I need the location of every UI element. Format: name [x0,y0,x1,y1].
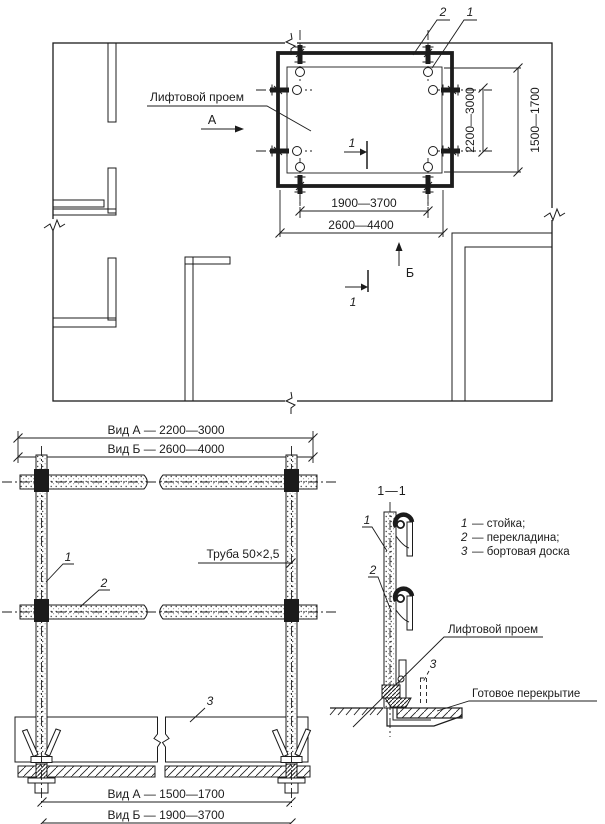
rail-hook-upper [395,515,412,556]
elev-callout-2: 2 [100,576,108,590]
opening-label-leader [147,106,311,131]
section-mark-label: 1 [349,136,356,150]
plan-dimensions: 1900—3700 2600—4400 2200—3000 1500—1700 [276,64,543,238]
drawing-sheet: 1900—3700 2600—4400 2200—3000 1500—1700 … [0,0,605,824]
section-board-hidden [420,678,427,706]
technical-drawing: 1900—3700 2600—4400 2200—3000 1500—1700 … [0,0,605,824]
plan-view: 1900—3700 2600—4400 2200—3000 1500—1700 … [44,5,565,414]
section-title: 1—1 [377,484,406,498]
sect-callout-1-leader [362,527,387,551]
plan-clamp-centerlines [256,30,492,218]
sect-callout-2: 2 [369,563,377,577]
legend-3-text: — бортовая доска [472,546,570,558]
elev-dim-bottom-a: Вид А — 1500—1700 [107,787,224,801]
slab-label: Готовое перекрытие [472,688,580,700]
plan-dim-height-inner: 2200—3000 [463,87,477,153]
legend-2-text: — перекладина; [472,532,559,544]
elev-dim-bottom-b: Вид Б — 1900—3700 [108,808,225,822]
view-b-label: Б [406,266,414,280]
elev-callout-3: 3 [207,694,214,708]
section-floor-left [330,708,383,715]
elev-dim-top-a: Вид А — 2200—3000 [107,423,224,437]
elevation-labels: 1 2 Труба 50×2,5 3 [46,547,296,722]
section-view: 1—1 1 2 3 Лифтовой проем Готовое перекры… [330,484,597,737]
legend-1-num: 1 [461,518,467,530]
sect-opening-label: Лифтовой проем [448,624,538,636]
elev-dim-top-b: Вид Б — 2600—4000 [108,442,225,456]
elevation-slab [18,766,310,777]
plan-callout-1: 1 [467,5,474,19]
section-mark-label: 1 [350,295,357,309]
elev-callout-1: 1 [65,550,72,564]
elevation-dimensions-bottom: Вид А — 1500—1700 Вид Б — 1900—3700 [38,787,296,824]
sect-callout-3-leader [423,671,429,682]
pipe-label: Труба 50×2,5 [207,547,280,561]
legend-1-text: — стойка; [472,518,525,530]
plan-walls [53,43,552,401]
elevation-view: Вид А — 2200—3000 Вид Б — 2600—4000 1 2 … [2,423,337,824]
section-legend: 1 — стойка; 2 — перекладина; 3 — бортова… [460,518,570,558]
legend-2-num: 2 [460,532,468,544]
elev-callout-2-leader [80,590,110,607]
sect-callout-1: 1 [364,513,371,527]
elev-callout-1-leader [46,564,74,582]
view-a-label: А [208,113,217,127]
plan-dim-width-inner: 1900—3700 [331,196,397,210]
elevation-dimensions-top: Вид А — 2200—3000 Вид Б — 2600—4000 [14,423,318,463]
section-mark-upper: 1 [344,136,367,169]
section-slab [397,708,462,718]
callout-1-leader [432,20,477,68]
plan-dim-width-outer: 2600—4400 [328,218,394,232]
legend-3-num: 3 [461,546,468,558]
elevation-boards [15,717,308,762]
plan-opening-label: Лифтовой проем [150,90,244,104]
plan-dim-height-outer: 1500—1700 [528,87,542,153]
sect-callout-3: 3 [430,657,437,671]
section-mark-lower: 1 [345,270,368,309]
rail-hook-lower [395,589,412,630]
plan-callout-2: 2 [439,5,447,19]
